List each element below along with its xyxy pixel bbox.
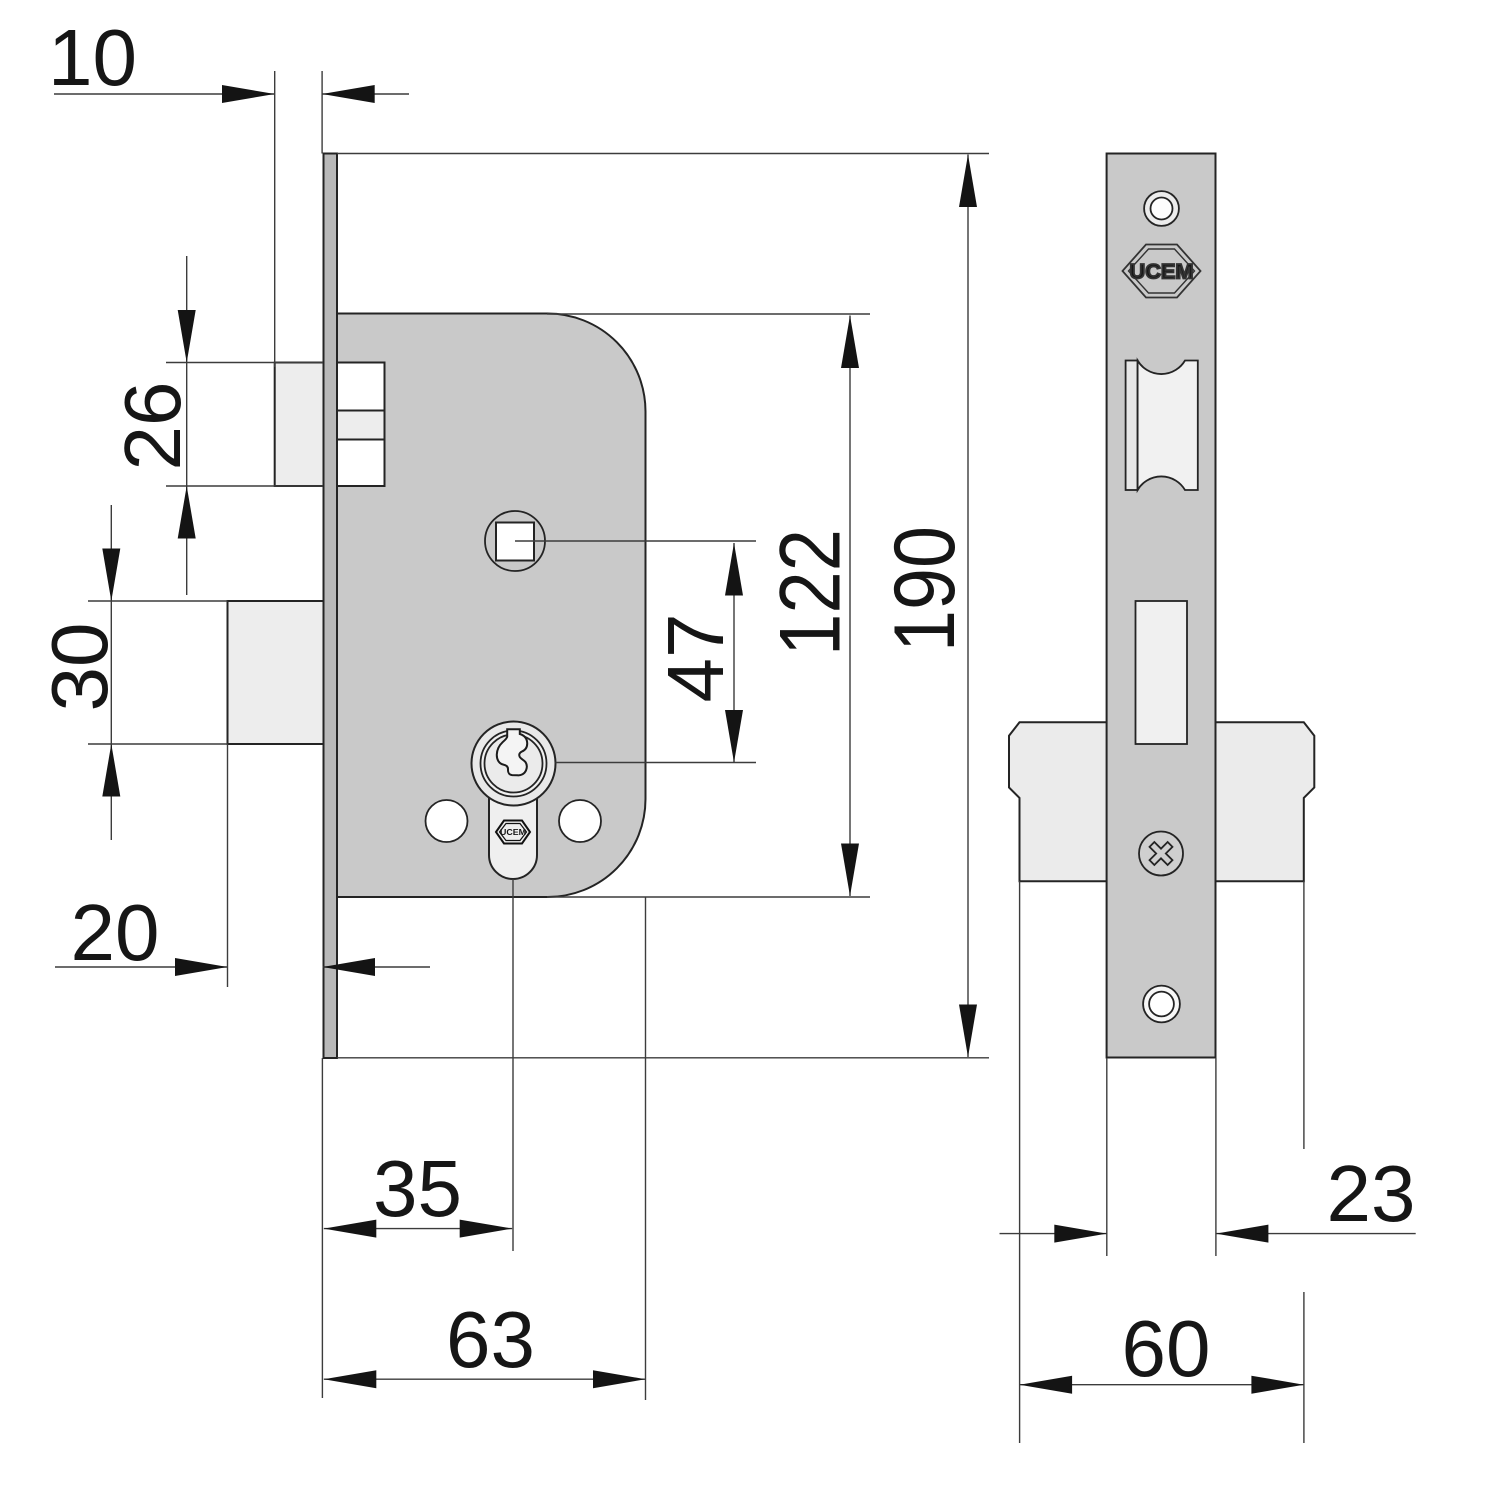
svg-text:35: 35 [373,1144,462,1233]
svg-text:122: 122 [763,529,859,656]
svg-text:190: 190 [877,526,973,652]
svg-text:20: 20 [71,888,160,977]
svg-text:23: 23 [1327,1149,1416,1238]
svg-text:10: 10 [48,13,137,102]
svg-text:60: 60 [1122,1304,1211,1393]
svg-text:30: 30 [35,623,124,712]
svg-text:UCEM: UCEM [1130,261,1194,284]
svg-text:UCEM: UCEM [500,827,526,837]
svg-text:63: 63 [446,1295,535,1384]
svg-text:26: 26 [108,382,197,471]
svg-text:47: 47 [651,614,740,703]
